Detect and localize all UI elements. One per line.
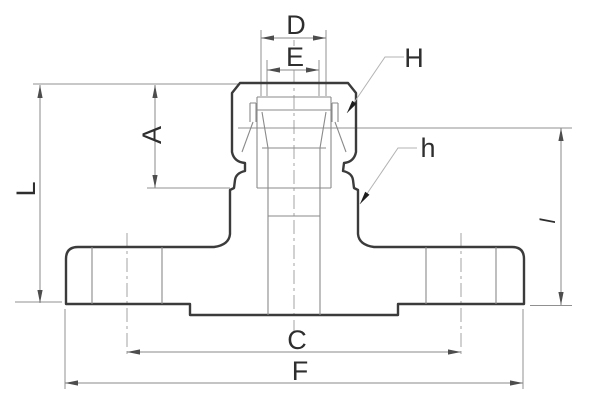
dim-arrow-F-right — [510, 380, 523, 385]
dim-arrow-L-top — [37, 85, 42, 98]
socket-taper-left — [262, 112, 268, 148]
part-outline — [66, 83, 524, 315]
cam-arm-right — [335, 122, 346, 152]
label-A: A — [137, 126, 167, 144]
dim-arrow-L-bottom — [37, 290, 42, 303]
dimension-labels: D E H h A L l C F — [11, 10, 560, 386]
label-L: L — [11, 181, 41, 196]
dim-arrow-E-right — [306, 67, 319, 72]
dim-arrow-D-right — [313, 35, 326, 40]
leader-arrow-h — [360, 192, 370, 204]
dim-arrow-E-left — [267, 67, 280, 72]
dim-arrow-F-left — [65, 380, 78, 385]
centerlines — [127, 40, 461, 358]
label-h: h — [420, 133, 435, 163]
fitting-section-drawing: D E H h A L l C F — [0, 0, 600, 406]
dim-arrow-A-bottom — [152, 175, 157, 188]
label-l: l — [537, 217, 560, 223]
cam-pocket-right — [332, 103, 338, 122]
cam-pocket-left — [250, 103, 256, 122]
dim-arrow-A-top — [152, 85, 157, 98]
label-F: F — [292, 356, 309, 386]
leader-lines — [347, 57, 417, 204]
technical-drawing-canvas: D E H h A L l C F — [0, 0, 600, 406]
dim-arrow-C-right — [448, 349, 461, 354]
dim-arrow-D-left — [261, 35, 274, 40]
label-H: H — [404, 43, 424, 73]
label-E: E — [286, 42, 304, 72]
label-D: D — [286, 10, 306, 40]
cam-arm-left — [242, 122, 253, 152]
socket-taper-right — [320, 112, 326, 148]
label-C: C — [287, 325, 307, 355]
dim-arrow-l-top — [558, 128, 563, 141]
dim-arrow-l-bottom — [558, 292, 563, 305]
dim-arrow-C-left — [127, 349, 140, 354]
